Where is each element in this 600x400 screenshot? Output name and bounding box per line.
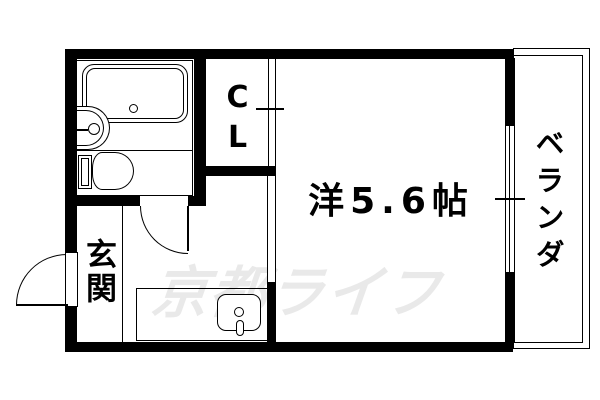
- wall-right-lower: [505, 273, 515, 342]
- kitchen-faucet-handle: [236, 320, 244, 336]
- wall-bathroom-bottom-left: [77, 196, 140, 206]
- toilet-bowl: [92, 152, 134, 190]
- wall-bathroom-bottom-right: [188, 196, 194, 206]
- wall-bottom: [65, 342, 513, 352]
- label-main-room: 洋5.6帖: [276, 172, 506, 224]
- bath-door-arc: [140, 206, 188, 254]
- bath-faucet: [88, 123, 100, 135]
- closet-door: [268, 58, 276, 167]
- wall-top: [65, 49, 513, 59]
- toilet-tank-inner: [81, 158, 89, 186]
- wall-partition-lower: [267, 282, 276, 342]
- partition-opening: [267, 176, 276, 282]
- wall-right-upper: [505, 58, 515, 125]
- floor-plan: 京都ライフ 玄関 CL 洋5.6帖 ベラン: [0, 0, 600, 400]
- genkan-step-line: [122, 206, 123, 342]
- closet-door-tick: [256, 108, 284, 110]
- kitchen-faucet: [234, 307, 244, 317]
- entrance-door-frame: [65, 252, 78, 307]
- label-closet: CL: [222, 80, 252, 160]
- wall-closet-bottom: [194, 166, 276, 176]
- entrance-door-arc: [16, 254, 67, 305]
- bathtub-drain: [129, 104, 138, 113]
- entrance-door-leaf: [16, 304, 68, 306]
- label-balcony: ベランダ: [533, 128, 562, 276]
- wall-bathroom-right: [194, 49, 206, 206]
- wall-left-upper: [65, 49, 77, 252]
- label-entrance: 玄関: [82, 238, 113, 306]
- bath-door-leaf: [187, 206, 189, 251]
